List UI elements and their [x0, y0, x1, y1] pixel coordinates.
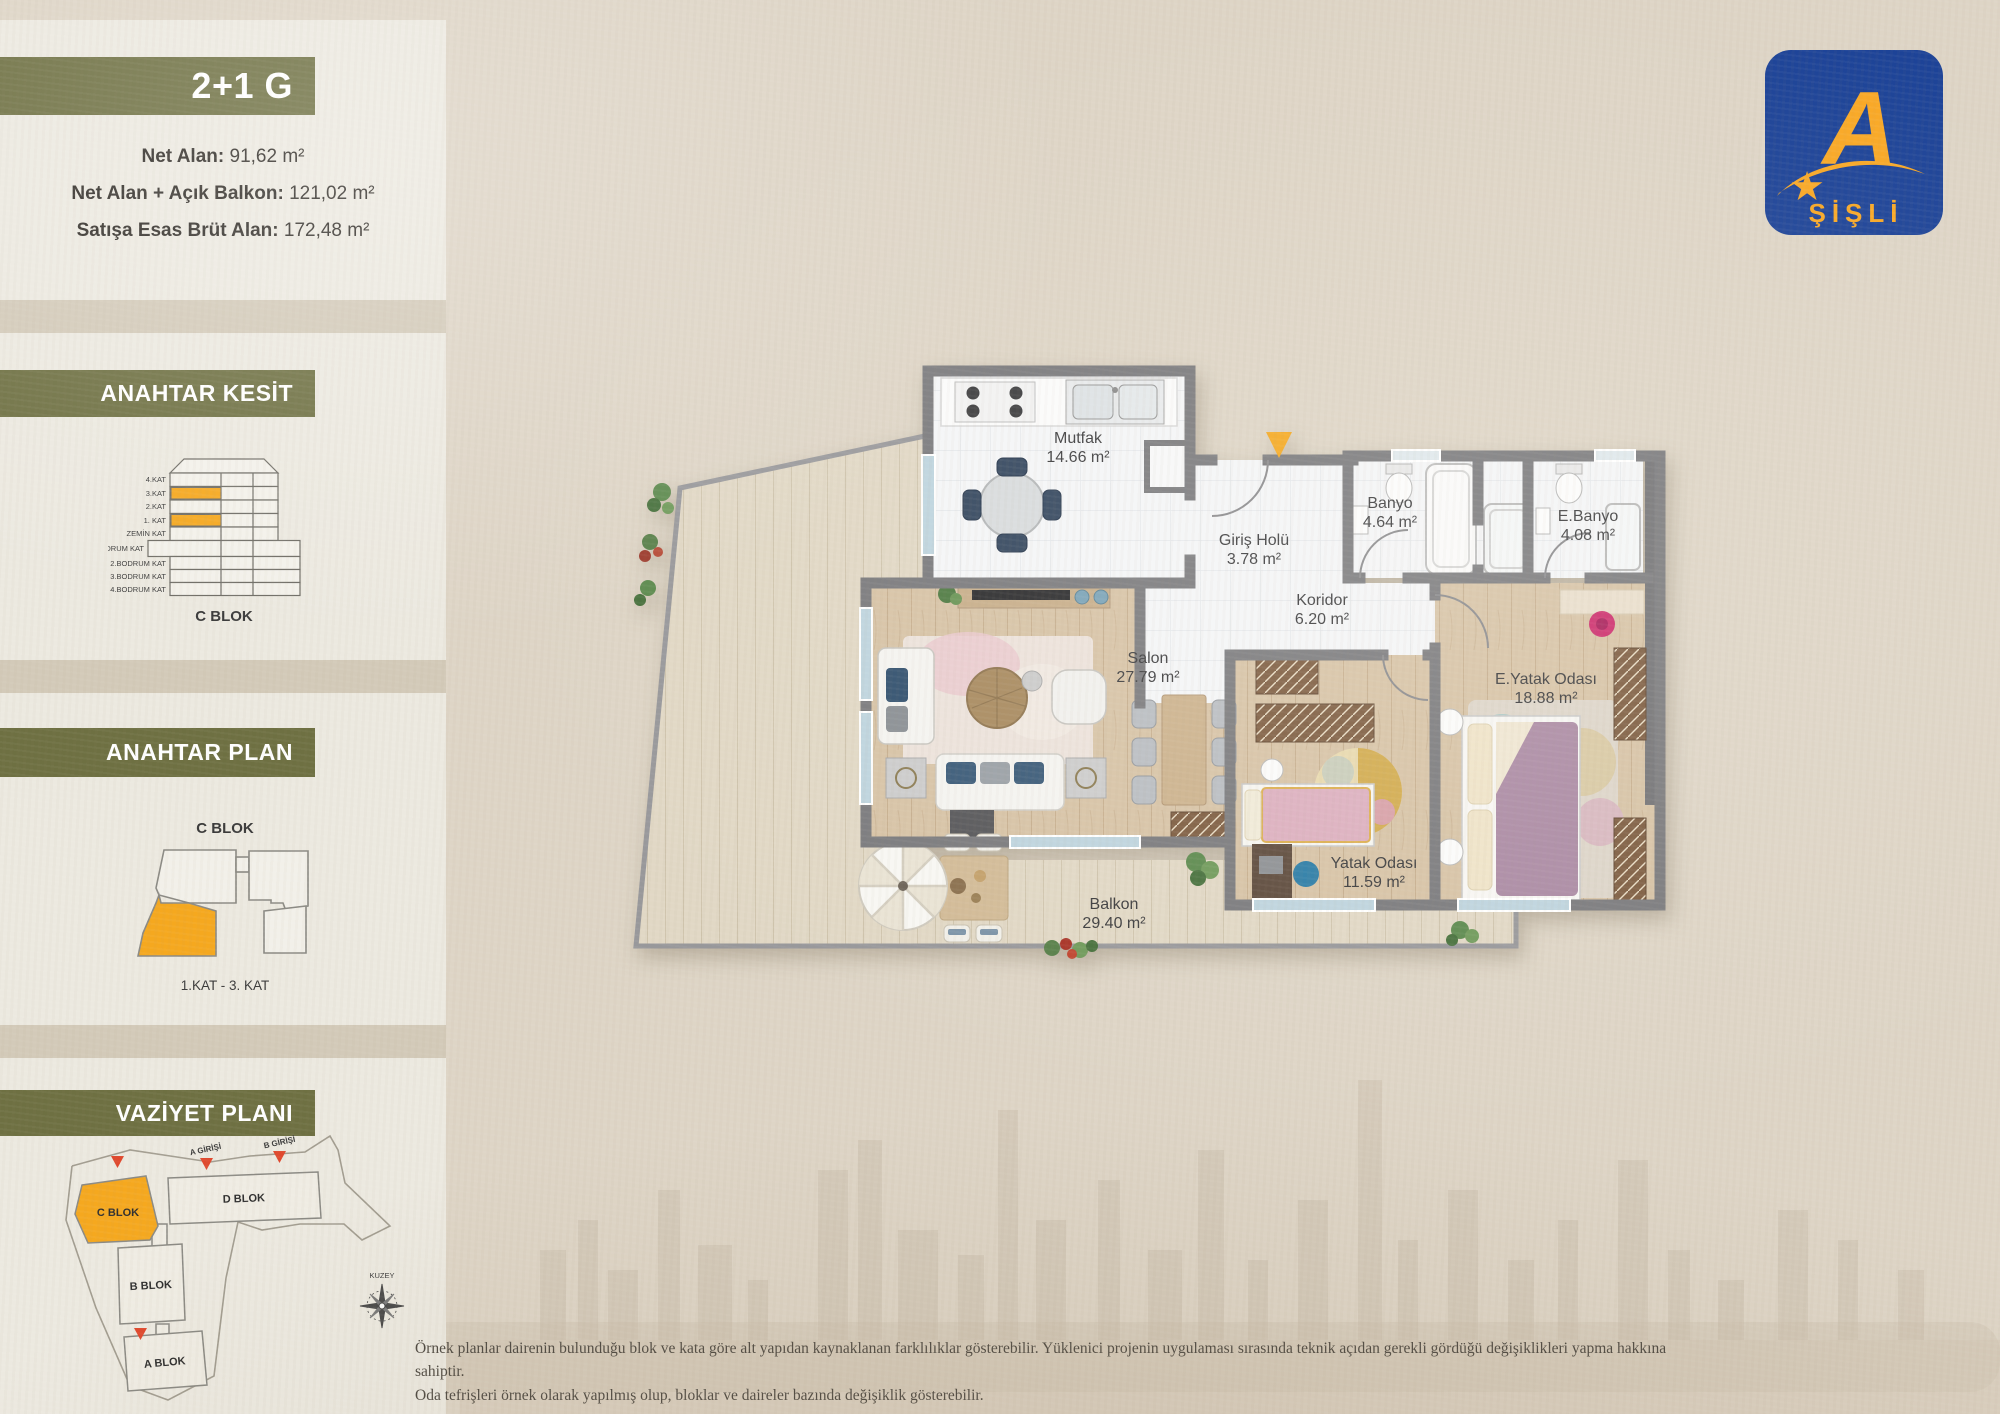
- svg-text:18.88 m²: 18.88 m²: [1514, 690, 1578, 707]
- floor-plan: Mutfak 14.66 m² Giriş Holü 3.78 m² Korid…: [550, 260, 1710, 980]
- entrance-marker: [273, 1151, 286, 1163]
- stove-icon: [955, 382, 1035, 422]
- floor-label: 2.KAT: [146, 502, 167, 511]
- svg-text:4.64 m²: 4.64 m²: [1363, 514, 1418, 531]
- building-section-diagram: 4.KAT 3.KAT 2.KAT 1. KAT ZEMİN KAT 1.BOD…: [108, 455, 348, 635]
- entrance-arrow-icon: [1266, 432, 1292, 458]
- sideboard: [1171, 812, 1225, 840]
- label-giris: Giriş Holü: [1219, 532, 1289, 549]
- compass-rose: KUZEY: [360, 1271, 404, 1328]
- highlighted-unit: [138, 895, 216, 956]
- floor-label: 4.BODRUM KAT: [110, 585, 166, 594]
- entrance-marker: [111, 1156, 124, 1168]
- toilet-icon: [1556, 473, 1582, 503]
- kitchen-table: [980, 473, 1044, 537]
- unit-type-banner: 2+1 G: [0, 57, 315, 115]
- nightstand: [1437, 839, 1463, 865]
- dresser: [1256, 660, 1318, 694]
- floor-label: ZEMİN KAT: [127, 529, 167, 538]
- dining-table: [1162, 695, 1206, 805]
- entrance-b-label: B GİRİŞİ: [263, 1135, 296, 1150]
- brochure-page: 2+1 G Net Alan: 91,62 m² Net Alan + Açık…: [0, 0, 2000, 1414]
- floor-label: 3.KAT: [146, 489, 167, 498]
- block-d-label: D BLOK: [223, 1192, 266, 1205]
- floor-label: 3.BODRUM KAT: [110, 572, 166, 581]
- svg-text:29.40 m²: 29.40 m²: [1082, 915, 1146, 932]
- stat-net-alan-balkon: Net Alan + Açık Balkon: 121,02 m²: [0, 175, 446, 212]
- site-plan-diagram: A GİRİŞİ B GİRİŞİ C BLOK D BLOK B BLOK A…: [0, 1128, 446, 1414]
- label-salon: Salon: [1128, 650, 1169, 667]
- sisli-logo: A ★ ŞİŞLİ: [1765, 50, 1943, 235]
- svg-text:11.59 m²: 11.59 m²: [1343, 874, 1406, 891]
- unit-type-label: 2+1 G: [191, 65, 293, 107]
- sink-icon: [1536, 508, 1550, 534]
- anahtar-kesit-title: ANAHTAR KESİT: [100, 380, 293, 407]
- key-plan-diagram: C BLOK 1.KAT - 3. KAT: [98, 805, 358, 1005]
- disclaimer-text: Örnek planlar dairenin bulunduğu blok ve…: [415, 1337, 1675, 1407]
- label-koridor: Koridor: [1296, 592, 1348, 609]
- divider-band: [0, 660, 446, 693]
- wardrobe: [1614, 648, 1646, 740]
- entrance-a-label: A GİRİŞİ: [189, 1142, 222, 1157]
- svg-text:27.79 m²: 27.79 m²: [1116, 669, 1180, 686]
- nightstand: [1437, 709, 1463, 735]
- floor-label: 1. KAT: [144, 516, 167, 525]
- nightstand: [1261, 759, 1283, 781]
- kesit-block-label: C BLOK: [195, 608, 253, 625]
- vaziyet-plani-title: VAZİYET PLANI: [116, 1100, 293, 1127]
- svg-text:4.08 m²: 4.08 m²: [1561, 527, 1616, 544]
- tv-icon: [972, 590, 1070, 600]
- svg-text:14.66 m²: 14.66 m²: [1046, 449, 1110, 466]
- key-plan-block-label: C BLOK: [196, 820, 254, 837]
- svg-text:6.20 m²: 6.20 m²: [1295, 611, 1350, 628]
- wardrobe: [1614, 818, 1646, 902]
- divider-band: [0, 1025, 446, 1058]
- label-banyo: Banyo: [1367, 495, 1412, 512]
- floor-label: 1.BODRUM KAT: [108, 544, 144, 553]
- parasol: [859, 842, 947, 930]
- vanity: [1560, 590, 1644, 614]
- outdoor-table: [940, 856, 1008, 920]
- stat-net-alan: Net Alan: 91,62 m²: [0, 138, 446, 175]
- wardrobe: [1256, 704, 1374, 742]
- divider-band: [0, 300, 446, 333]
- key-plan-floor-label: 1.KAT - 3. KAT: [181, 978, 270, 993]
- label-mutfak: Mutfak: [1054, 430, 1103, 447]
- anahtar-plan-title: ANAHTAR PLAN: [106, 739, 293, 766]
- label-eyatak: E.Yatak Odası: [1495, 671, 1597, 688]
- stat-brut-alan: Satışa Esas Brüt Alan: 172,48 m²: [0, 212, 446, 249]
- unit-stats: Net Alan: 91,62 m² Net Alan + Açık Balko…: [0, 138, 446, 249]
- block-c-label: C BLOK: [97, 1207, 139, 1219]
- desk-chair: [1293, 861, 1319, 887]
- disclaimer-line-2: Oda tefrişleri örnek olarak yapılmış olu…: [415, 1384, 1675, 1407]
- block-b-label: B BLOK: [129, 1279, 172, 1293]
- label-ebanyo: E.Banyo: [1558, 508, 1619, 525]
- side-table: [886, 758, 926, 798]
- entrance-marker: [200, 1158, 213, 1170]
- anahtar-plan-banner: ANAHTAR PLAN: [0, 728, 315, 777]
- floor-label: 2.BODRUM KAT: [110, 559, 166, 568]
- label-yatak: Yatak Odası: [1331, 855, 1418, 872]
- svg-text:3.78 m²: 3.78 m²: [1227, 551, 1282, 568]
- side-table: [1066, 758, 1106, 798]
- logo-brand-text: ŞİŞLİ: [1808, 198, 1903, 228]
- pantry-nook: [1147, 443, 1190, 490]
- anahtar-kesit-banner: ANAHTAR KESİT: [0, 370, 315, 417]
- armchair: [1052, 670, 1106, 724]
- compass-north-label: KUZEY: [369, 1271, 394, 1280]
- floor-label: 4.KAT: [146, 475, 167, 484]
- label-balkon: Balkon: [1090, 896, 1139, 913]
- disclaimer-line-1: Örnek planlar dairenin bulunduğu blok ve…: [415, 1337, 1675, 1384]
